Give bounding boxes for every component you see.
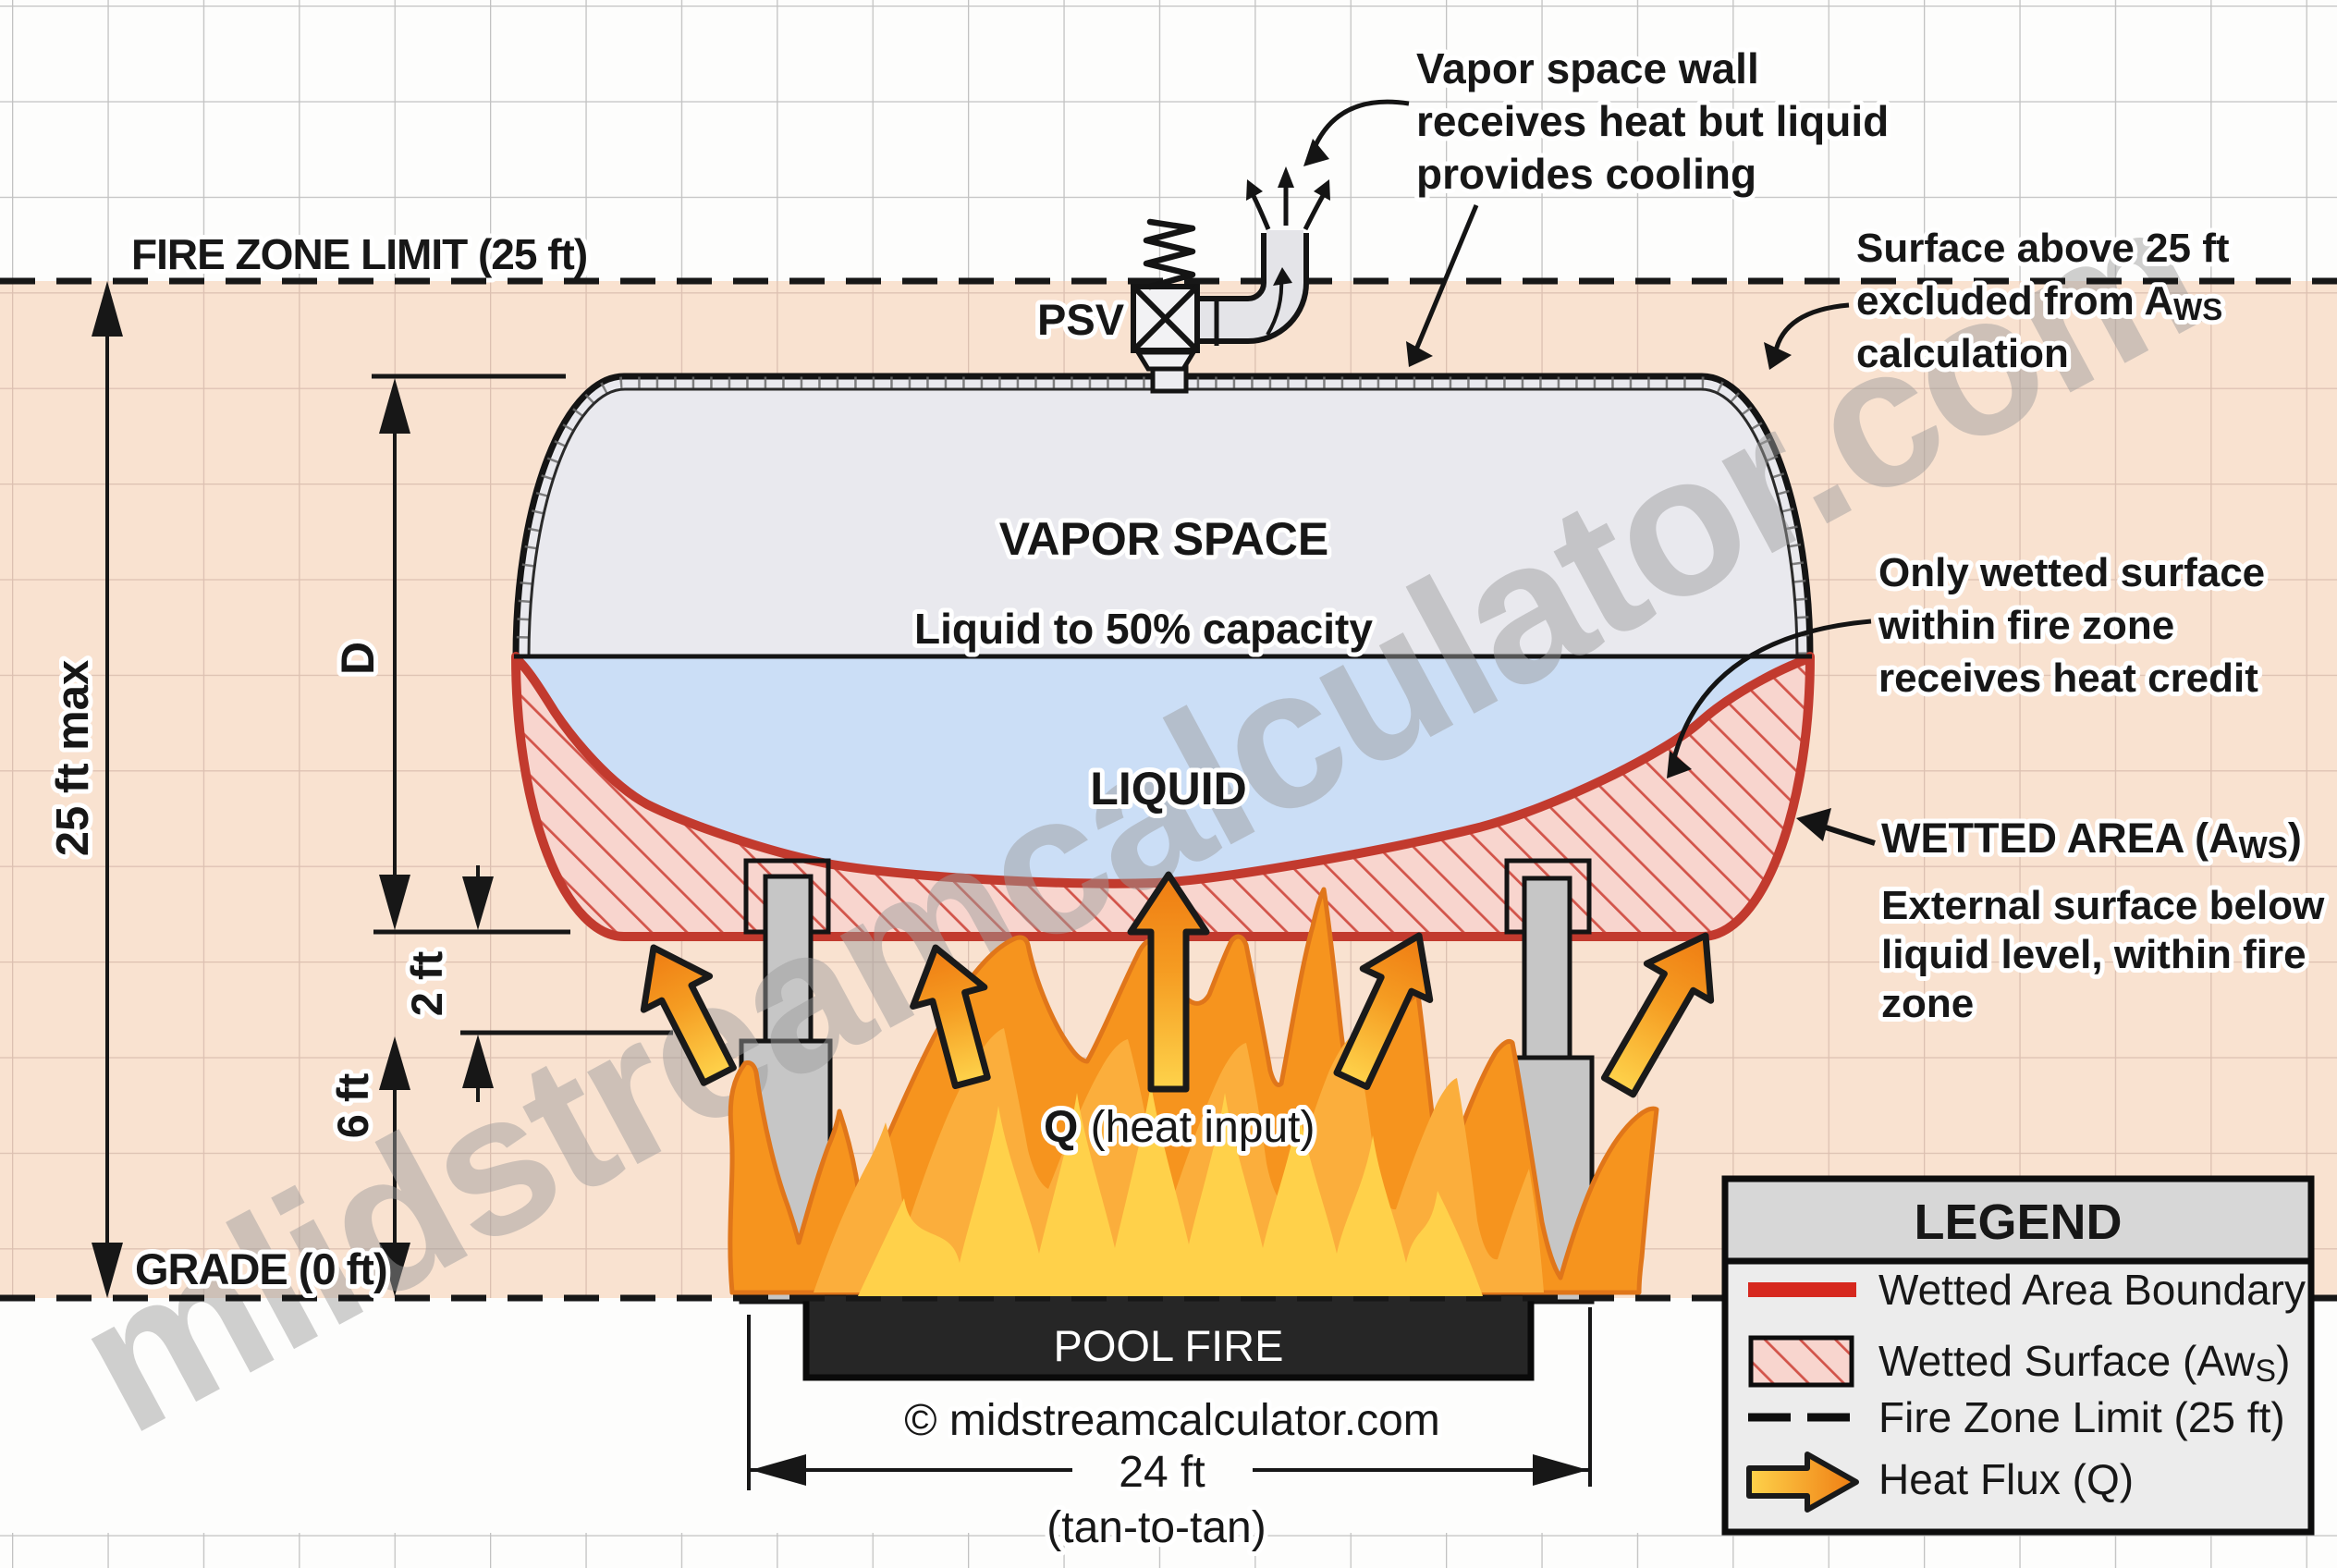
svg-text:excluded from AWS: excluded from AWS [1856,278,2222,326]
svg-text:liquid level, within fire: liquid level, within fire [1881,932,2306,977]
svg-text:PSV: PSV [1037,295,1125,344]
svg-text:provides cooling: provides cooling [1416,150,1756,198]
svg-text:calculation: calculation [1856,331,2069,376]
svg-text:LIQUID: LIQUID [1090,763,1246,815]
svg-text:External surface below: External surface below [1881,883,2325,928]
svg-text:2 ft: 2 ft [402,950,451,1016]
svg-text:zone: zone [1881,981,1974,1026]
svg-text:Only wetted surface: Only wetted surface [1878,550,2265,595]
svg-text:LEGEND: LEGEND [1914,1194,2122,1250]
svg-text:Liquid to 50% capacity: Liquid to 50% capacity [914,605,1373,653]
svg-text:Heat Flux (Q): Heat Flux (Q) [1878,1455,2134,1503]
svg-text:24 ft: 24 ft [1119,1448,1205,1497]
svg-text:FIRE ZONE LIMIT (25 ft): FIRE ZONE LIMIT (25 ft) [131,230,587,278]
svg-text:WETTED AREA (AWS): WETTED AREA (AWS) [1881,815,2302,864]
svg-text:Q (heat input): Q (heat input) [1044,1103,1315,1152]
svg-text:within fire zone: within fire zone [1878,603,2174,648]
svg-text:Fire Zone Limit (25 ft): Fire Zone Limit (25 ft) [1878,1393,2285,1441]
svg-text:VAPOR SPACE: VAPOR SPACE [999,513,1329,565]
svg-text:(tan-to-tan): (tan-to-tan) [1046,1503,1266,1552]
svg-text:Wetted Area Boundary: Wetted Area Boundary [1878,1266,2306,1314]
svg-text:POOL FIRE: POOL FIRE [1054,1321,1284,1370]
svg-text:Vapor space wall: Vapor space wall [1416,44,1759,92]
svg-text:Wetted Surface (AwS): Wetted Surface (AwS) [1878,1337,2290,1389]
svg-text:D: D [332,642,384,675]
svg-text:© midstreamcalculator.com: © midstreamcalculator.com [904,1396,1440,1445]
svg-text:Surface above 25 ft: Surface above 25 ft [1856,226,2230,271]
svg-text:GRADE (0 ft): GRADE (0 ft) [135,1244,387,1293]
svg-text:receives heat credit: receives heat credit [1878,655,2258,701]
svg-text:25 ft max: 25 ft max [48,660,98,856]
svg-text:receives heat but liquid: receives heat but liquid [1416,97,1889,145]
